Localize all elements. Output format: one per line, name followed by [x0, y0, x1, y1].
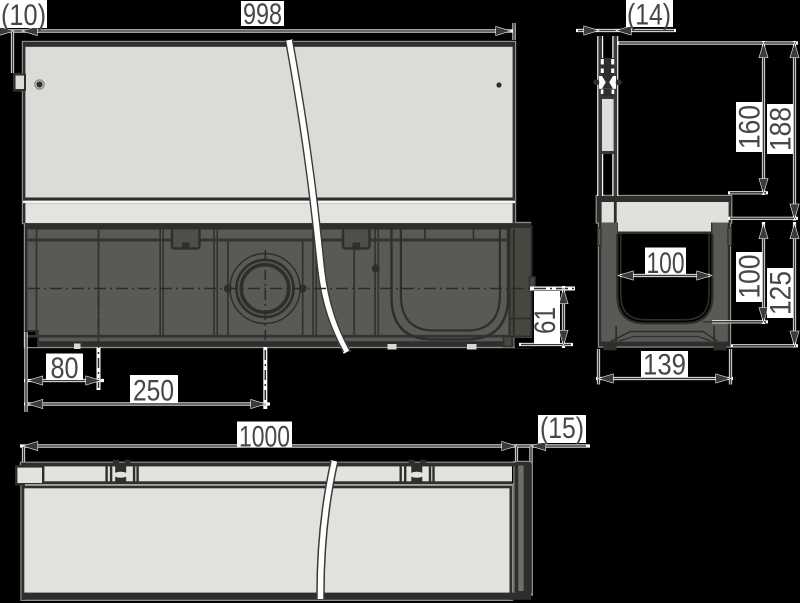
svg-text:1000: 1000 — [239, 421, 290, 454]
svg-text:250: 250 — [133, 375, 174, 408]
svg-text:998: 998 — [243, 0, 282, 31]
svg-text:61: 61 — [529, 307, 562, 334]
svg-text:(15): (15) — [540, 412, 584, 445]
svg-text:(14): (14) — [627, 0, 671, 32]
svg-text:100: 100 — [734, 255, 767, 299]
svg-text:139: 139 — [643, 349, 686, 382]
svg-text:188: 188 — [765, 107, 798, 151]
svg-text:(10): (10) — [1, 0, 46, 32]
svg-text:100: 100 — [647, 247, 685, 280]
svg-text:160: 160 — [734, 105, 767, 149]
svg-text:125: 125 — [765, 271, 798, 315]
svg-text:80: 80 — [51, 352, 79, 385]
